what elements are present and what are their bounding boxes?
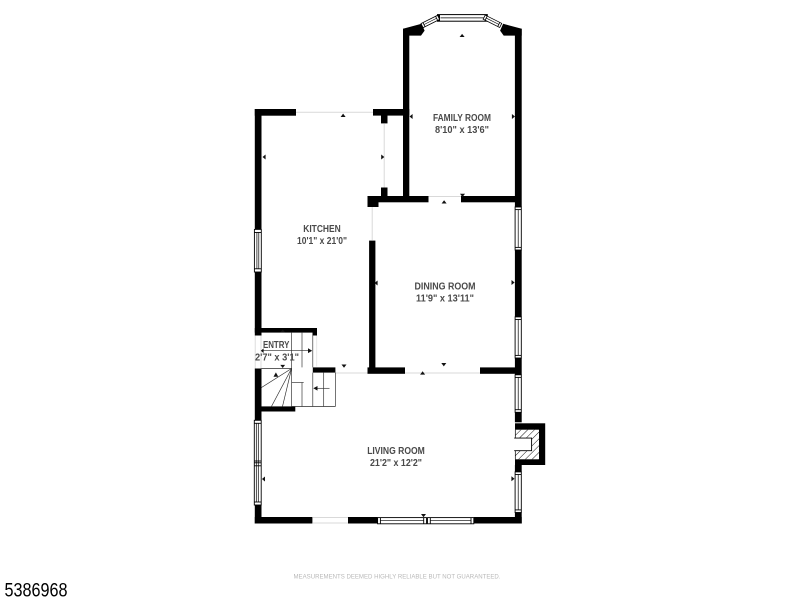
svg-text:21'2" x 12'2": 21'2" x 12'2" — [370, 458, 422, 469]
svg-text:11'9" x 13'11": 11'9" x 13'11" — [416, 293, 474, 304]
svg-text:10'1" x 21'0": 10'1" x 21'0" — [297, 236, 347, 247]
svg-text:ENTRY: ENTRY — [263, 340, 290, 351]
svg-text:5386968: 5386968 — [5, 579, 68, 600]
svg-text:LIVING ROOM: LIVING ROOM — [367, 446, 425, 457]
svg-text:FAMILY ROOM: FAMILY ROOM — [433, 113, 491, 124]
svg-text:8'10" x 13'6": 8'10" x 13'6" — [435, 125, 489, 136]
svg-text:MEASUREMENTS DEEMED HIGHLY REL: MEASUREMENTS DEEMED HIGHLY RELIABLE BUT … — [294, 573, 501, 580]
svg-text:DINING ROOM: DINING ROOM — [415, 282, 476, 293]
svg-text:KITCHEN: KITCHEN — [303, 224, 341, 235]
svg-text:2'7" x 3'1": 2'7" x 3'1" — [255, 352, 299, 363]
